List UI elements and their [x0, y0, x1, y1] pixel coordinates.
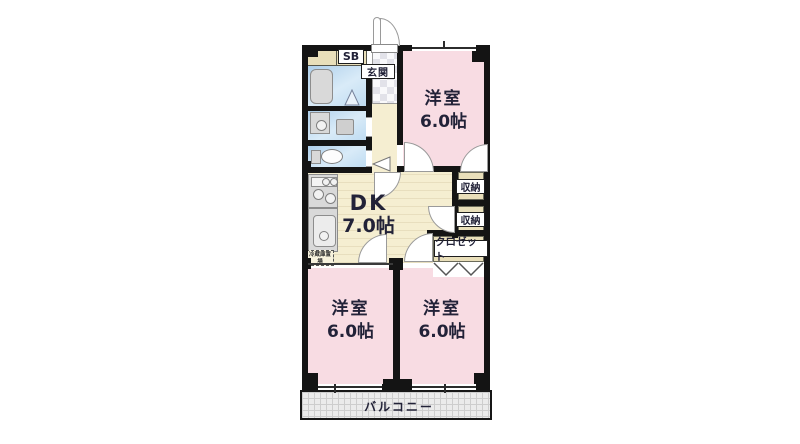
storage-upper-label: 収納 [456, 179, 485, 194]
window-bottom-left [318, 384, 382, 390]
wall-washroom-toilet [308, 140, 366, 146]
closet-folding-door-icon [433, 262, 484, 277]
partition-dk-roombl [308, 263, 393, 265]
window-tick-br [444, 384, 446, 393]
washing-machine-icon [336, 119, 354, 135]
toilet-door-marker-icon [372, 156, 391, 172]
washbasin-icon [310, 112, 330, 134]
closet-label: クロゼット [434, 240, 488, 257]
bathtub-icon [310, 69, 333, 104]
pillar-bottom-left [302, 373, 318, 390]
wall-between-bottom-rooms [393, 263, 400, 390]
room-bottom-left-label: 洋室 6.0帖 [308, 292, 393, 350]
pillar-bottom-right [474, 373, 490, 390]
entrance-door-arc [380, 18, 400, 46]
floor-plan: 冷蔵庫置場 [0, 0, 800, 444]
entrance-label: 玄関 [361, 64, 395, 79]
shoe-cabinet-divider [336, 49, 337, 65]
door-gap-washroom [366, 117, 372, 137]
wall-utility-hall-b [366, 137, 372, 150]
storage-lower-label: 収納 [456, 212, 485, 227]
window-tick-bl [334, 384, 336, 393]
window-tick-top [443, 41, 445, 47]
wall-utility-dk [306, 167, 372, 173]
room-bottom-right-label: 洋室 6.0帖 [400, 292, 484, 350]
toilet-bowl-icon [321, 149, 343, 164]
shoe-box-label: SB [338, 49, 364, 64]
wall-bath-washroom [308, 106, 366, 111]
bath-folding-door-icon [344, 89, 360, 106]
balcony-label: バルコニー [352, 398, 446, 414]
room-top-right-label: 洋室 6.0帖 [403, 82, 484, 140]
pillar-top-left [302, 45, 318, 57]
toilet-tank-icon [311, 150, 321, 164]
entrance-threshold [371, 44, 398, 53]
wall-storage-mid [452, 200, 490, 206]
dk-label: DK 7.0帖 [316, 186, 421, 244]
